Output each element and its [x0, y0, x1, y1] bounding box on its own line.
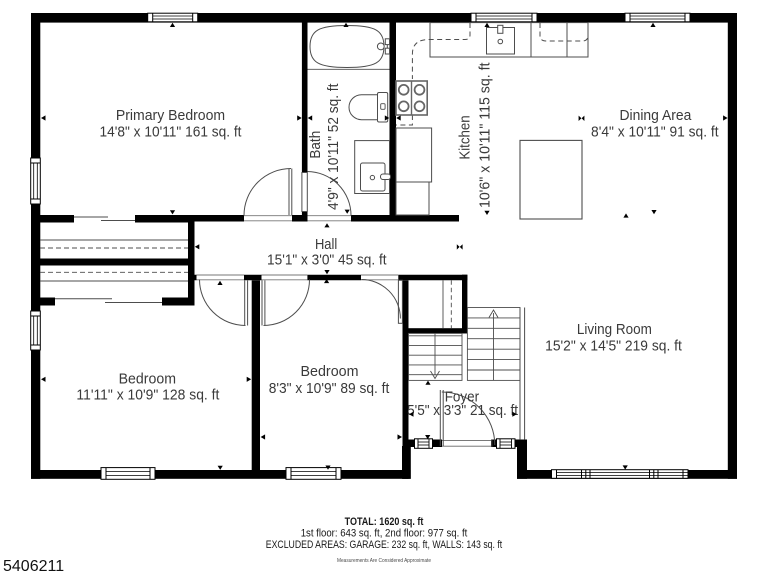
svg-text:Bedroom: Bedroom — [301, 363, 359, 380]
svg-text:1st floor: 643 sq. ft, 2nd flo: 1st floor: 643 sq. ft, 2nd floor: 977 sq… — [301, 527, 468, 539]
svg-text:Bedroom: Bedroom — [119, 371, 176, 388]
svg-text:10'6" x 10'11" 115 sq. ft: 10'6" x 10'11" 115 sq. ft — [476, 62, 493, 208]
svg-text:15'1" x 3'0" 45 sq. ft: 15'1" x 3'0" 45 sq. ft — [267, 252, 387, 269]
svg-text:8'3" x 10'9" 89 sq. ft: 8'3" x 10'9" 89 sq. ft — [269, 380, 390, 397]
svg-text:Living Room: Living Room — [577, 321, 652, 338]
svg-text:11'11" x 10'9" 128 sq. ft: 11'11" x 10'9" 128 sq. ft — [76, 386, 220, 403]
svg-text:Hall: Hall — [315, 236, 337, 253]
svg-text:EXCLUDED AREAS: GARAGE: 232 sq: EXCLUDED AREAS: GARAGE: 232 sq. ft, WALL… — [266, 539, 502, 551]
svg-text:Bath: Bath — [307, 131, 324, 159]
svg-text:5406211: 5406211 — [3, 558, 64, 575]
svg-text:Dining Area: Dining Area — [620, 107, 692, 124]
svg-text:8'4" x 10'11" 91 sq. ft: 8'4" x 10'11" 91 sq. ft — [591, 124, 719, 141]
svg-text:15'2" x 14'5" 219 sq. ft: 15'2" x 14'5" 219 sq. ft — [545, 338, 682, 355]
svg-text:5'5" x 3'3" 21 sq. ft: 5'5" x 3'3" 21 sq. ft — [407, 402, 519, 419]
svg-text:Measurements Are Considered Ap: Measurements Are Considered Approximate — [337, 558, 431, 564]
svg-text:4'9" x 10'11" 52 sq. ft: 4'9" x 10'11" 52 sq. ft — [325, 83, 342, 210]
svg-text:14'8" x 10'11" 161 sq. ft: 14'8" x 10'11" 161 sq. ft — [100, 123, 243, 140]
svg-text:Primary Bedroom: Primary Bedroom — [116, 107, 225, 124]
svg-text:Kitchen: Kitchen — [457, 115, 474, 159]
